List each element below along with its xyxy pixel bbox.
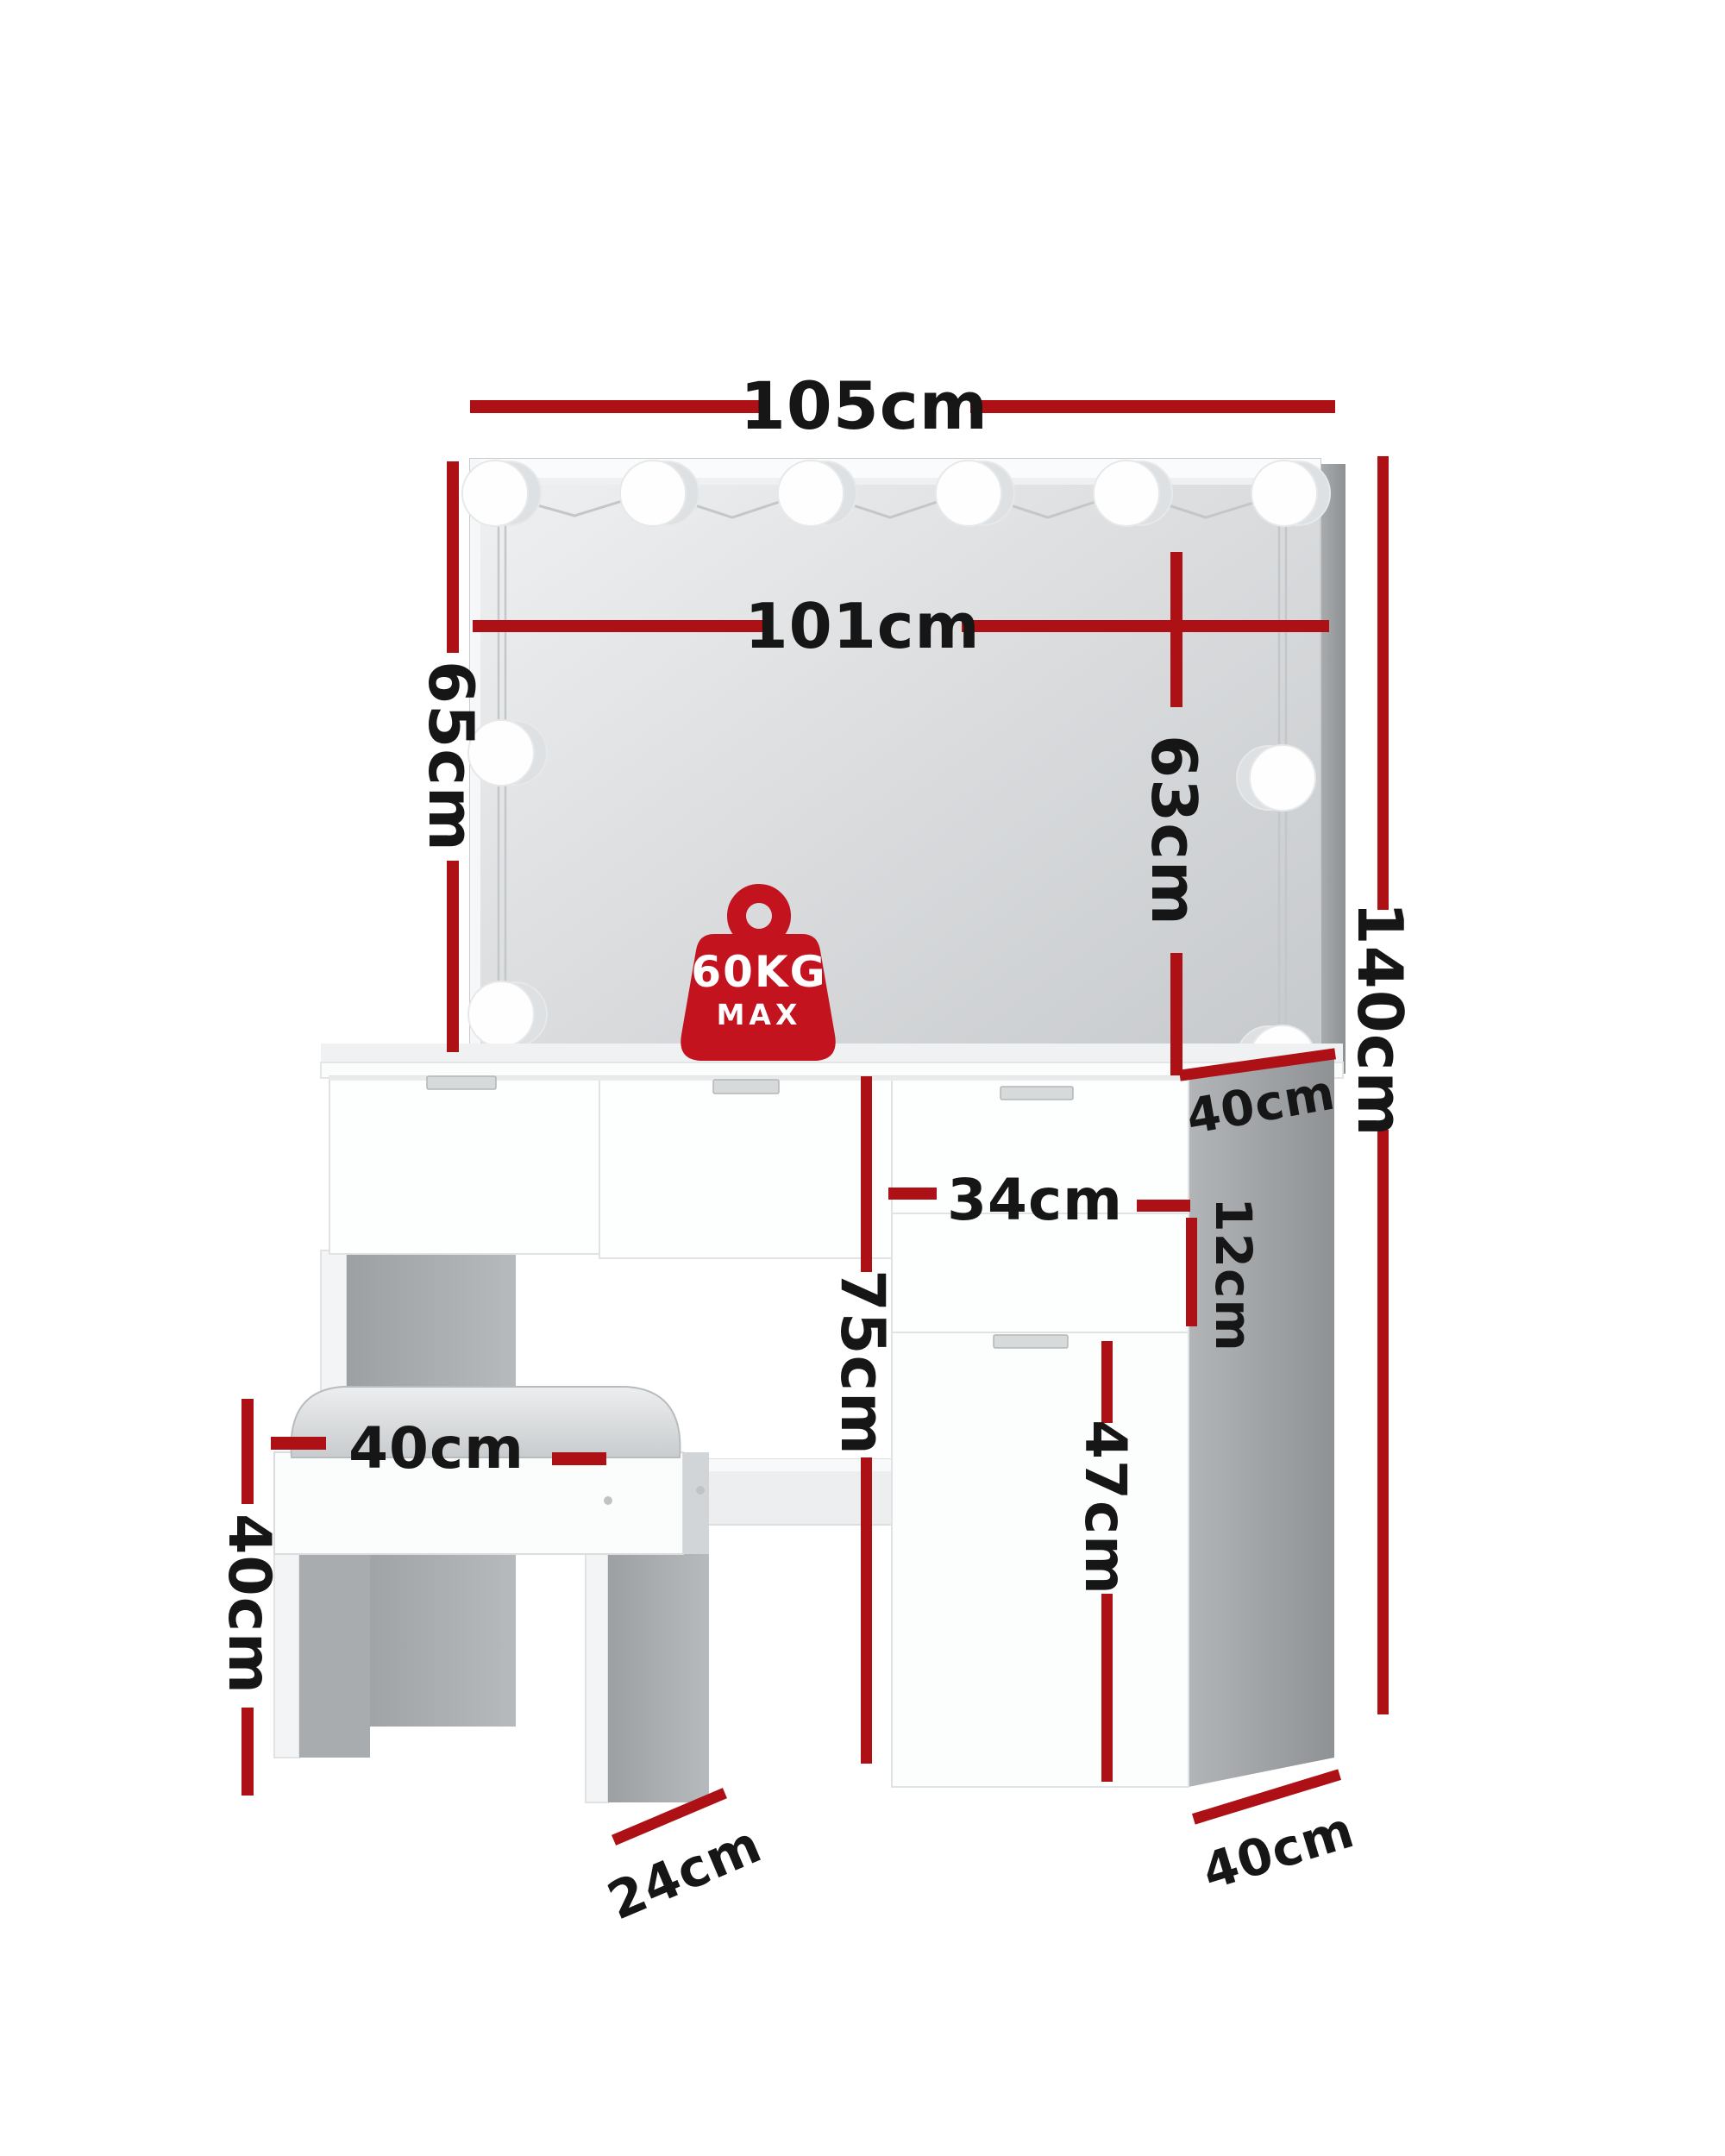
drawer-handle-icon <box>427 1076 496 1089</box>
bulb-icon <box>778 461 856 526</box>
dim-tabletop-height-label: 75cm <box>832 1269 893 1456</box>
dim-mirror-width-line-left <box>470 400 759 413</box>
dim-stool-height-line-bottom <box>241 1708 254 1796</box>
dim-overall-height-line-top <box>1377 456 1389 910</box>
badge-qualifier-text: MAX <box>673 998 845 1031</box>
dim-drawer-width-tick-left <box>888 1188 937 1200</box>
mirror-top-frame <box>470 459 1320 478</box>
max-weight-badge: 60KG MAX <box>673 880 845 1066</box>
cabinet-side-panel <box>1189 1054 1334 1787</box>
dim-door-height-line-bottom <box>1101 1594 1113 1782</box>
dim-mirror-right-height-label: 63cm <box>1143 735 1205 926</box>
stool-right-leg-panel <box>608 1552 709 1802</box>
dim-door-height-label: 47cm <box>1076 1420 1133 1595</box>
bulb-icon <box>1094 461 1172 526</box>
dim-mirror-left-height-line-bottom <box>447 861 459 1052</box>
desk-drawer-left <box>329 1076 599 1254</box>
mirror <box>462 459 1345 1091</box>
dim-overall-height-label: 140cm <box>1349 902 1411 1138</box>
stool-seat-side <box>683 1452 709 1554</box>
dim-mirror-width-label: 105cm <box>740 373 988 439</box>
dim-mirror-right-height-line-top <box>1170 552 1182 707</box>
dim-door-height-line-top <box>1101 1341 1113 1423</box>
bulb-icon <box>1237 745 1315 811</box>
bulb-icon <box>936 461 1014 526</box>
dim-mirror-width-line-right <box>970 400 1335 413</box>
cabinet-door <box>892 1332 1189 1787</box>
dim-stool-width-label: 40cm <box>348 1420 524 1477</box>
dim-lights-span-line-right <box>962 620 1329 632</box>
dim-overall-height-line-bottom <box>1377 1130 1389 1714</box>
dim-mirror-right-height-line-bottom <box>1170 953 1182 1075</box>
dim-stool-height-line-top <box>241 1399 254 1504</box>
dim-drawer-height-label: 12cm <box>1208 1197 1258 1352</box>
mirror-glow-strip <box>480 478 1320 485</box>
badge-weight-text: 60KG <box>673 947 845 997</box>
door-handle-icon <box>994 1335 1068 1348</box>
bulb-icon <box>1251 461 1330 526</box>
dim-lights-span-line-left <box>473 620 763 632</box>
stool-left-leg-panel <box>299 1552 370 1758</box>
diagram-canvas: 105cm 101cm 65cm 63cm 140cm 40cm 34cm 12… <box>0 0 1725 2156</box>
dim-stool-width-tick-left <box>271 1437 326 1450</box>
bulb-icon <box>462 461 541 526</box>
dim-mirror-left-height-label: 65cm <box>420 661 482 852</box>
desk-drawer-middle <box>599 1076 892 1258</box>
bulb-icon <box>620 461 699 526</box>
drawer-handle-icon <box>1000 1087 1073 1100</box>
stool-right-leg-edge <box>586 1552 608 1802</box>
bulb-icon <box>468 981 547 1047</box>
screw-icon <box>604 1496 612 1505</box>
dim-tabletop-height-line-top <box>861 1076 872 1272</box>
screw-icon <box>696 1486 705 1495</box>
dim-stool-height-label: 40cm <box>219 1514 278 1695</box>
dim-stool-width-tick-right <box>552 1452 606 1465</box>
mirror-side-edge <box>1320 464 1345 1074</box>
dim-drawer-width-tick-right <box>1137 1200 1190 1212</box>
dim-lights-span-label: 101cm <box>745 595 981 657</box>
dim-tabletop-height-line-bottom <box>861 1457 872 1764</box>
drawer-handle-icon <box>713 1080 779 1094</box>
dim-drawer-width-label: 34cm <box>947 1172 1123 1229</box>
dim-mirror-left-height-line-top <box>447 461 459 653</box>
dim-drawer-height-line <box>1186 1218 1197 1326</box>
